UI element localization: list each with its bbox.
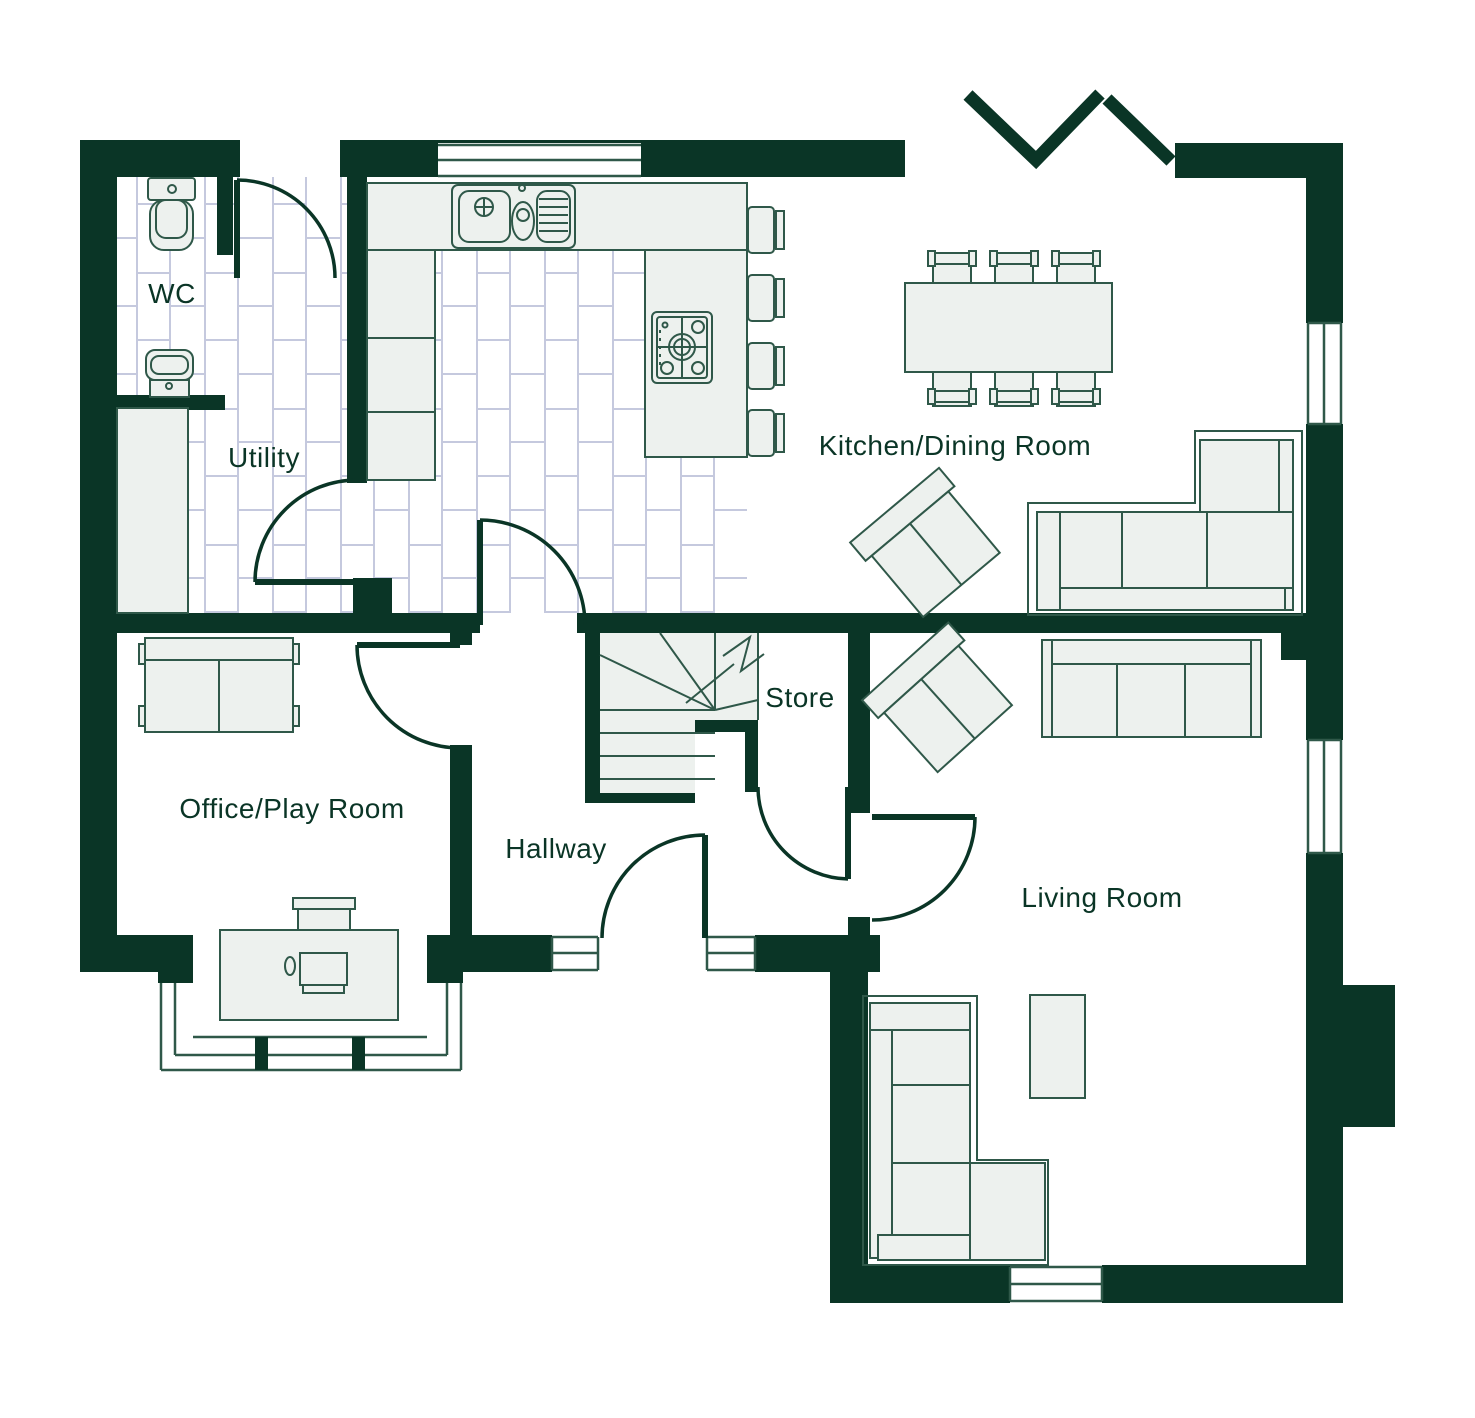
- wall-front-hall-right: [755, 935, 880, 972]
- bar-stool: [748, 275, 784, 321]
- desk-chair: [293, 898, 355, 933]
- door-living: [872, 817, 975, 920]
- window-kitchen-top: [438, 143, 641, 178]
- wall-front-office-left: [117, 935, 193, 972]
- dining-chair: [928, 372, 976, 406]
- bay-mullion-left: [255, 1037, 268, 1070]
- dining-chair: [990, 372, 1038, 406]
- hob: [652, 312, 712, 383]
- armchair-living: [862, 623, 1018, 778]
- desk-area: [220, 898, 398, 1020]
- room-label-wc: WC: [148, 278, 196, 309]
- wall-utility-kitchen: [347, 140, 367, 483]
- room-label-kitchen-dining: Kitchen/Dining Room: [819, 430, 1092, 461]
- window-living-right: [1306, 740, 1343, 853]
- dining-table: [905, 283, 1112, 372]
- door-front: [602, 835, 705, 938]
- wall-stairs-bottom: [585, 793, 695, 803]
- staircase: [600, 633, 764, 793]
- roof-break-zigzag: [968, 94, 1171, 161]
- wall-office-hall-lower: [450, 745, 472, 935]
- toilet: [148, 178, 195, 250]
- bay-mullion-right: [352, 1037, 365, 1070]
- bar-stool: [748, 343, 784, 389]
- armchair-dining: [850, 468, 1006, 622]
- sofa-living-top: [1042, 640, 1261, 737]
- door-store: [758, 787, 848, 879]
- wall-store-stub-top: [690, 720, 758, 732]
- wall-hall-living-lower: [848, 917, 870, 935]
- wall-wc-right: [217, 172, 233, 255]
- room-label-store: Store: [765, 682, 834, 713]
- sidelight-front-left: [552, 935, 598, 972]
- window-dining-right: [1306, 323, 1343, 424]
- sidelight-front-right: [707, 935, 755, 972]
- wall-mid-left: [80, 613, 480, 633]
- corner-sofa-living: [863, 996, 1048, 1265]
- bay-post-right: [427, 967, 463, 983]
- room-label-office: Office/Play Room: [179, 793, 404, 824]
- bar-stool: [748, 207, 784, 253]
- wall-hall-living-upper: [848, 633, 870, 813]
- window-living-bottom: [1010, 1265, 1102, 1303]
- wall-store-stub-left: [745, 732, 758, 792]
- bar-stools: [748, 207, 784, 456]
- bay-post-left: [158, 967, 193, 983]
- office-sofa: [139, 638, 299, 732]
- kitchen-sink: [452, 185, 575, 248]
- wall-top-right: [1175, 143, 1343, 178]
- wall-stairs-left: [585, 633, 600, 800]
- bar-stool: [748, 410, 784, 456]
- utility-counter: [117, 408, 188, 613]
- room-label-hallway: Hallway: [505, 833, 607, 864]
- dining-chair: [1052, 372, 1100, 406]
- wall-front-office-right: [427, 935, 552, 972]
- window-utility-top: [240, 140, 340, 177]
- floor-plan-canvas: WC Utility Kitchen/Dining Room Office/Pl…: [0, 0, 1475, 1418]
- room-label-utility: Utility: [228, 442, 300, 473]
- floor-plan: WC Utility Kitchen/Dining Room Office/Pl…: [0, 0, 1475, 1418]
- room-label-living: Living Room: [1021, 882, 1182, 913]
- coffee-table: [1030, 995, 1085, 1098]
- door-office: [357, 645, 460, 748]
- kitchen-counter-left: [367, 250, 435, 480]
- dining-set: [905, 251, 1112, 406]
- wall-jog-kitchen-living: [1281, 633, 1343, 660]
- wall-left: [80, 140, 117, 972]
- wall-utility-jog: [353, 578, 392, 613]
- desk-monitor: [300, 953, 347, 993]
- basin: [146, 350, 193, 397]
- chimney-breast: [1343, 985, 1395, 1127]
